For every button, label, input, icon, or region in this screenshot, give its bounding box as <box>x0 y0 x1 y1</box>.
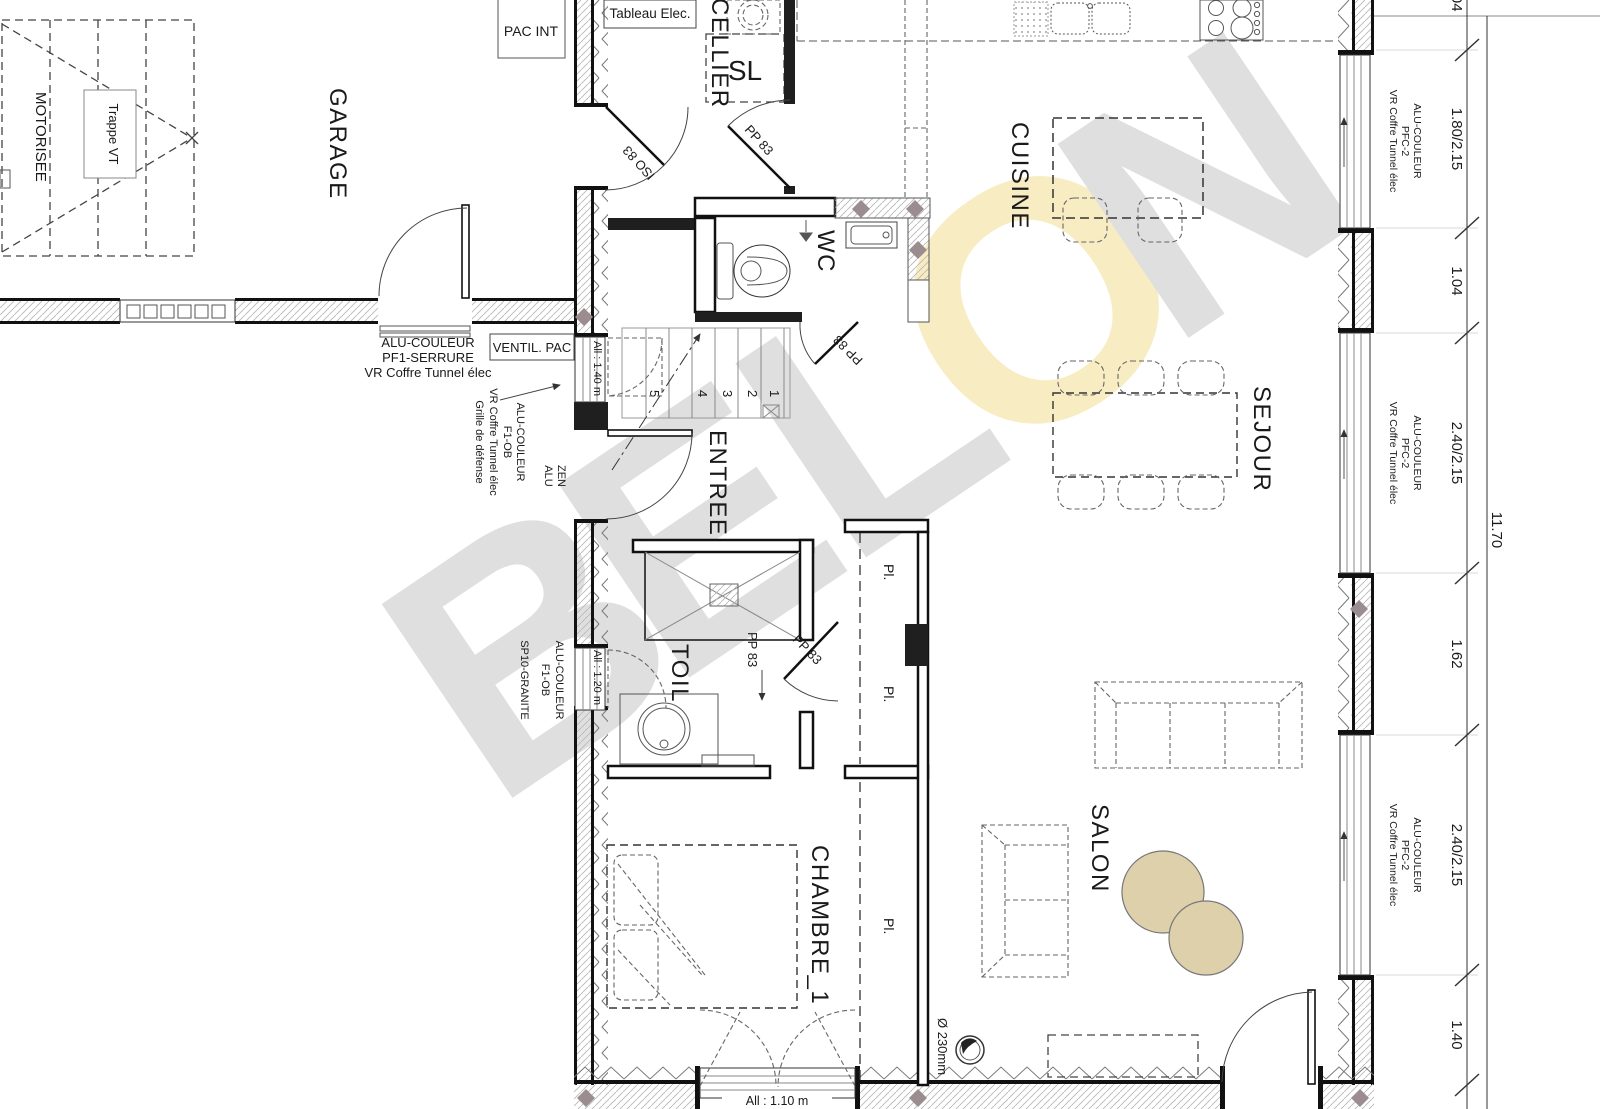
toil-window-sill-label: All : 1.20 m <box>591 650 603 705</box>
chambre-window-sill-label: All : 1.10 m <box>746 1094 809 1108</box>
cellier-door: PP 83 <box>728 100 790 188</box>
bed <box>607 845 797 1008</box>
trappe-vt-box: Trappe VT <box>84 90 136 178</box>
salon-area: Ø 230mm SALON <box>935 682 1302 1077</box>
east-window-3 <box>1340 735 1370 975</box>
room-label-cuisine: CUISINE <box>1006 122 1033 230</box>
garage-grille-window <box>120 300 235 322</box>
sofa <box>1095 682 1302 768</box>
drainer <box>1014 2 1048 36</box>
annotation-line: ALU-COULEUR <box>553 641 565 720</box>
wood-stove-flue <box>956 1036 984 1064</box>
garage-cellier-door-label: ISO 83 <box>620 143 658 183</box>
east-wall <box>1338 0 1374 1085</box>
room-label-salon: SALON <box>1086 804 1113 893</box>
garage-south-wall <box>0 205 576 337</box>
dining-chair <box>1118 475 1164 509</box>
dim-segment: 2.40/2.15 <box>1448 422 1465 485</box>
annotation-line: ALU-COULEUR <box>381 335 474 350</box>
armchair <box>982 825 1068 977</box>
stair-number: 4 <box>695 390 710 397</box>
room-label-chambre1: CHAMBRE_1 <box>806 845 833 1005</box>
washing-machine <box>727 0 780 34</box>
annotation-line: SP10-GRANITE <box>518 640 530 719</box>
east-window-2 <box>1340 333 1370 573</box>
salon-terrace-door <box>1222 990 1318 1109</box>
annotation-line: F1-OB <box>501 426 513 458</box>
ventil-pac-label: VENTIL. PAC <box>493 340 572 355</box>
motorisee-label: MOTORISEE <box>32 92 49 182</box>
pac-int-label: PAC INT <box>504 23 559 39</box>
floor-plan-svg: B E L O N Trappe VT MOTORISEE GARAGE PAC… <box>0 0 1600 1109</box>
annotation-line: Grille de défense <box>473 400 485 483</box>
dining-chair <box>1178 475 1224 509</box>
west-wall: All : 1.40 m All : 1.20 m <box>574 0 608 1085</box>
dim-segment: 2.40/2.15 <box>1448 824 1465 887</box>
entry-window-annotation: ALU-COULEUR F1-OB VR Coffre Tunnel élec … <box>473 388 526 496</box>
annotation-line: VR Coffre Tunnel élec <box>365 365 492 380</box>
room-label-entree: ENTREE <box>704 430 731 536</box>
closet-label: Pl. <box>881 686 897 702</box>
flue-diameter-label: Ø 230mm <box>935 1018 950 1075</box>
garage-cellier-door: ISO 83 <box>605 107 688 190</box>
closet-label: Pl. <box>881 564 897 580</box>
garage-window-annotation: ALU-COULEUR PF1-SERRURE VR Coffre Tunnel… <box>365 335 492 380</box>
floor-plan: B E L O N Trappe VT MOTORISEE GARAGE PAC… <box>0 0 1600 1109</box>
annotation-line: ALU <box>542 465 554 486</box>
room-label-cellier: CELLIER <box>706 0 733 109</box>
wall-post <box>574 402 608 430</box>
entry-side-window: All : 1.40 m <box>575 337 605 402</box>
east-window-annotation: PFC-2 <box>1399 126 1411 156</box>
east-window-annotation: PFC-2 <box>1399 840 1411 870</box>
dim-segment: 1.04 <box>1448 266 1465 295</box>
room-label-sejour: SEJOUR <box>1248 386 1275 492</box>
entry-window-sill-label: All : 1.40 m <box>591 341 603 396</box>
dim-segment: 1.62 <box>1448 639 1465 668</box>
room-label-garage: GARAGE <box>324 88 351 200</box>
tableau-elec-label: Tableau Elec. <box>609 6 690 21</box>
room-label-wc: WC <box>812 230 839 273</box>
coffee-table <box>1169 901 1243 975</box>
chambre-window: All : 1.10 m <box>700 1068 855 1108</box>
hand-basin <box>846 222 897 248</box>
toil-door-label: PP 83 <box>745 632 760 667</box>
cellier-area: SL CELLIER PP 83 ISO 83 Tableau Elec. <box>604 0 795 194</box>
pac-int-box: PAC INT <box>498 0 565 58</box>
annotation-line: PF1-SERRURE <box>382 350 474 365</box>
annotation-line: VR Coffre Tunnel élec <box>487 388 499 496</box>
east-window-annotation: ALU-COULEUR <box>1411 103 1423 179</box>
east-window-annotation: ALU-COULEUR <box>1411 415 1423 491</box>
cellier-door-label: PP 83 <box>742 122 777 158</box>
east-window-annotation: VR Coffre Tunnel élec <box>1387 90 1399 193</box>
dim-total: 11.70 <box>1488 512 1505 548</box>
dim-segment: 1.80/2.15 <box>1448 108 1465 171</box>
toil-window: All : 1.20 m <box>575 648 605 710</box>
garage-area: Trappe VT MOTORISEE GARAGE PAC INT <box>0 0 565 256</box>
annotation-arrow <box>500 385 560 400</box>
trappe-vt-label: Trappe VT <box>106 104 121 165</box>
stair-number: 1 <box>767 390 782 397</box>
dim-segment: 1.04 <box>1448 0 1465 12</box>
east-window-1 <box>1340 55 1370 228</box>
closet-label: Pl. <box>881 918 897 934</box>
ventil-pac-box: VENTIL. PAC <box>490 334 574 360</box>
annotation-line: ALU-COULEUR <box>514 403 526 482</box>
annotation-line: ZEN <box>555 465 567 487</box>
east-window-annotation: VR Coffre Tunnel élec <box>1387 804 1399 907</box>
chambre-area: CHAMBRE_1 <box>607 845 855 1087</box>
dim-segment: 1.40 <box>1448 1020 1465 1049</box>
stair-number: 2 <box>745 390 760 397</box>
east-window-annotation: VR Coffre Tunnel élec <box>1387 402 1399 505</box>
east-window-annotation: PFC-2 <box>1399 438 1411 468</box>
dimension-chain: 1.04 1.80/2.15 1.04 2.40/2.15 1.62 2.40/… <box>1374 0 1600 1109</box>
east-window-annotation: ALU-COULEUR <box>1411 817 1423 893</box>
garage-service-door <box>379 205 470 337</box>
entry-door-annotation: ALU ZEN <box>542 465 567 487</box>
tableau-elec-box: Tableau Elec. <box>604 0 696 28</box>
room-label-toil: TOIL <box>666 644 693 703</box>
stair-number: 3 <box>720 390 735 397</box>
annotation-line: F1-OB <box>539 664 551 696</box>
